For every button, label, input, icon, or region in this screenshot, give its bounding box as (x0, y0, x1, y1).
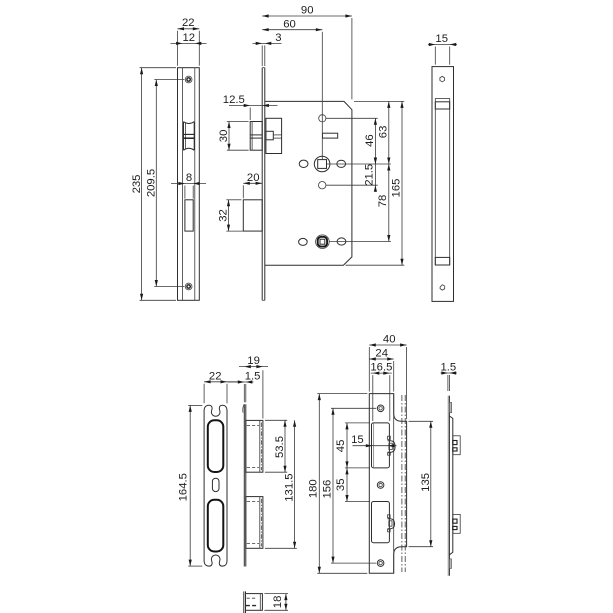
svg-text:22: 22 (182, 17, 195, 29)
svg-text:15: 15 (435, 33, 448, 45)
svg-text:40: 40 (383, 334, 396, 346)
svg-text:46: 46 (364, 134, 376, 147)
svg-text:235: 235 (131, 175, 143, 194)
svg-text:165: 165 (391, 179, 403, 198)
svg-text:1.5: 1.5 (245, 370, 261, 382)
svg-text:45: 45 (335, 440, 347, 453)
svg-text:32: 32 (217, 209, 229, 222)
svg-text:30: 30 (218, 130, 230, 143)
svg-text:21.5: 21.5 (363, 164, 375, 186)
svg-text:3: 3 (275, 32, 281, 44)
svg-text:19: 19 (247, 355, 260, 367)
svg-text:22: 22 (209, 371, 222, 383)
svg-text:180: 180 (308, 479, 320, 498)
svg-text:90: 90 (301, 5, 314, 17)
svg-text:16.5: 16.5 (370, 362, 392, 374)
svg-text:164.5: 164.5 (177, 473, 189, 501)
svg-text:35: 35 (335, 479, 347, 492)
svg-text:12.5: 12.5 (223, 94, 245, 106)
svg-text:60: 60 (283, 18, 296, 30)
svg-text:20: 20 (247, 172, 260, 184)
svg-text:18: 18 (272, 596, 284, 609)
svg-text:24: 24 (375, 348, 388, 360)
svg-text:135: 135 (420, 473, 432, 492)
svg-text:12: 12 (183, 32, 196, 44)
svg-text:1.5: 1.5 (440, 361, 456, 373)
svg-text:8: 8 (186, 172, 192, 184)
svg-text:209.5: 209.5 (145, 169, 157, 197)
svg-text:63: 63 (378, 126, 390, 139)
svg-text:131.5: 131.5 (283, 473, 295, 501)
svg-text:15: 15 (351, 434, 364, 446)
svg-text:156: 156 (322, 480, 334, 499)
svg-text:53.5: 53.5 (274, 436, 286, 458)
svg-text:78: 78 (377, 195, 389, 208)
